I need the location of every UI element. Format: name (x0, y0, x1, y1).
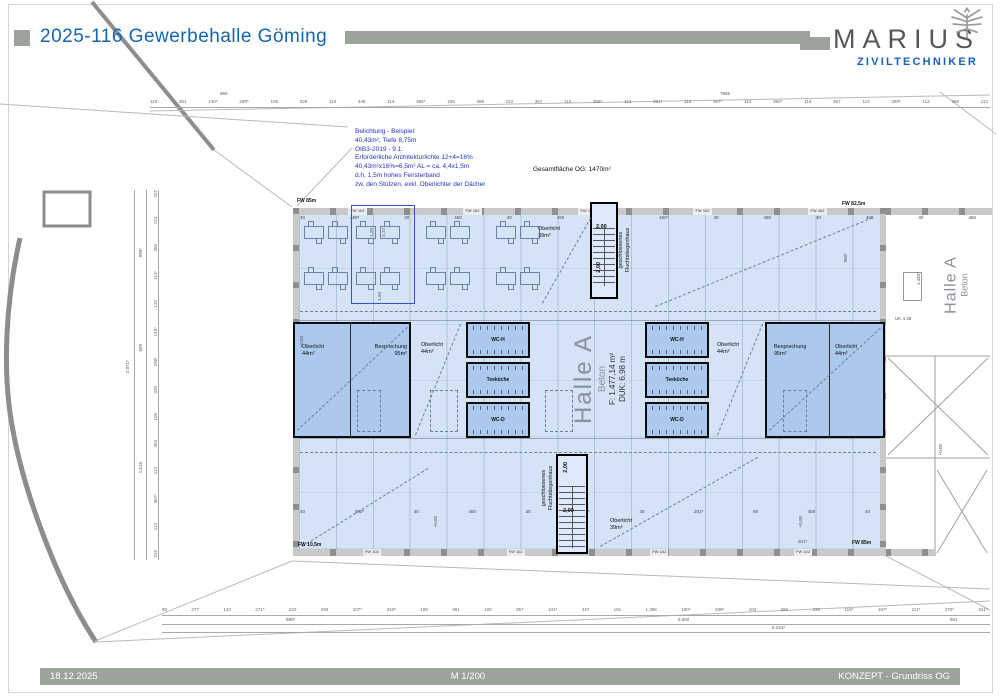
desk-cluster (424, 218, 472, 312)
dim-value: 301 (179, 99, 187, 104)
oberlicht-label: Oberlicht44m² (421, 342, 443, 355)
hall-title: Halle A Beton F: 1.477,14 m² DUK: 6,98 m (571, 314, 629, 444)
wall-tag: FW 102 (794, 549, 812, 556)
dim-value: 100⁵ (681, 607, 690, 612)
dim-value: 148⁵ (153, 327, 158, 336)
level-label: +0,00 (299, 336, 304, 347)
dim-value: 5,73 (381, 228, 386, 237)
room-teekueche: Teeküche (645, 362, 709, 398)
oberlicht-label: Oberlicht44m² (717, 342, 739, 355)
dim-value: 1.398 (646, 607, 657, 612)
dim-value: 366⁵ (593, 99, 602, 104)
desk-cluster (302, 218, 350, 312)
dim-value: 40 (526, 509, 531, 514)
hall-name: Halle A (571, 314, 597, 444)
total-area-label: Gesamtfläche OG: 1470m² (533, 166, 611, 173)
dim-value: 107⁵ (353, 607, 362, 612)
stairwell-south (556, 454, 588, 554)
dim-value: 341⁵ (979, 607, 988, 612)
stair-width-label: 2,00 (563, 508, 574, 515)
dim-value: 367⁵ (153, 494, 158, 503)
dim-value: 357 (516, 607, 524, 612)
dim-value: 277 (191, 607, 199, 612)
hall-material: Beton (597, 314, 608, 444)
dim-value: 113 (329, 99, 336, 104)
dim-line-top (150, 107, 990, 108)
dim-value: 339⁵ (715, 607, 724, 612)
dim-value: 187⁵ (878, 607, 887, 612)
dim-total: 990⁵ (286, 617, 295, 622)
dim-value: 113 (506, 99, 513, 104)
note-line: 40,43m²x16%=6,5m² AL = ca. 4,4x1,5m (355, 163, 485, 172)
dim-total: 2.071⁵ (125, 360, 130, 373)
dim-value: 113 (387, 99, 394, 104)
dim-chain-bottom: 90277132271⁵222293107⁵343⁵10539110035710… (162, 607, 988, 612)
dim-value: 101⁵ (548, 607, 557, 612)
header-bar (345, 31, 810, 44)
austrian-eagle-icon (949, 6, 985, 42)
dashed-line (300, 452, 876, 453)
dim-value: 40 (639, 509, 644, 514)
dim-value: 270⁵ (945, 607, 954, 612)
plan-scale: M 1/200 (451, 671, 485, 682)
level-label: +0,00 (433, 516, 438, 527)
dim-value: 100 (153, 413, 158, 421)
dim-value: 366 (951, 99, 959, 104)
note-line: Belichtung - Beispiel: (355, 128, 485, 137)
dim-value: 115⁵ (844, 607, 853, 612)
wc-stack-west: WC-H Teeküche WC-D (466, 322, 530, 438)
dim-value: 215 (153, 550, 158, 558)
hall-duk: DUK: 6,98 m (618, 314, 628, 444)
dim-value: 1.440⁵ (916, 272, 921, 285)
dim-value: 113 (804, 99, 811, 104)
hall-material: Beton (960, 238, 970, 333)
dim-value: 100 (484, 607, 492, 612)
dim-value: 60 (753, 509, 758, 514)
level-label: +0,00 (938, 444, 943, 455)
dim-value: 460 (968, 215, 976, 220)
oberlicht-label: Oberlicht39m² (610, 518, 632, 531)
dim-value: 298⁵ (153, 357, 158, 366)
brand-subtitle: ZIVILTECHNIKER (857, 56, 978, 68)
dim-line-bottom (162, 624, 990, 625)
fw-label: FW 82,5m (842, 201, 865, 208)
dim-line-bottom (162, 632, 990, 633)
wall-tag: FW 102 (507, 549, 525, 556)
dim-value: 460 (454, 215, 462, 220)
roof-opening (545, 390, 573, 432)
stairwell-north (590, 202, 618, 299)
dim-value: 101 (614, 607, 622, 612)
dim-value: 140⁵ (208, 99, 217, 104)
dim-total: 7665 (720, 91, 730, 96)
dim-value: 369 (477, 99, 485, 104)
dim-value: 40 (865, 509, 870, 514)
note-line: Erforderliche Architekturlichte 12+4=16% (355, 154, 485, 163)
dim-total: 999⁵ (138, 248, 143, 257)
dim-value: 113 (153, 467, 158, 474)
dim-value: 391 (452, 607, 460, 612)
fw-label: FW 10,5m (298, 542, 321, 549)
dim-total: 8.244⁵ (772, 625, 785, 630)
dim-value: 201⁵ (694, 509, 703, 514)
dim-value: 40 (816, 215, 821, 220)
dim-value: 369⁵ (891, 99, 900, 104)
dim-value: 460 (763, 215, 771, 220)
dim-chain-top: 119301140⁵299⁵109229113348113366⁵1083691… (150, 99, 988, 104)
hall-name: Halle A (943, 238, 960, 333)
roof-opening (783, 390, 807, 432)
dim-value: 109 (270, 99, 278, 104)
dim-value: 113 (684, 99, 691, 104)
dim-value: 1,50 (377, 292, 382, 301)
plan-sheet: 2025-116 Gewerbehalle Göming MARIUS ZIVI… (0, 0, 1000, 700)
dim-value: 90 (162, 607, 167, 612)
stair-name-label: geschlossenes Fluchtstiegenhaus (618, 190, 632, 310)
dim-total: 599 (138, 344, 143, 352)
dim-value: 40 (713, 215, 718, 220)
wall-tag: FW 102 (808, 208, 826, 215)
dim-value: 460 (468, 509, 476, 514)
dim-value: 113 (624, 99, 631, 104)
wc-stack-east: WC-H Teeküche WC-D (645, 322, 709, 438)
dim-value: 104 (749, 607, 757, 612)
dim-value: 40 (918, 215, 923, 220)
dim-value: 119 (150, 99, 157, 104)
dim-value: 327 (153, 190, 158, 198)
dim-value: 348 (358, 99, 366, 104)
dim-value: 112 (744, 99, 751, 104)
dim-value: 299⁵ (239, 99, 248, 104)
dim-value: 271⁵ (255, 607, 264, 612)
dim-value: 367 (833, 99, 841, 104)
plan-sheet-name: KONZEPT - Grundriss OG (838, 671, 950, 682)
note-line: OIB3-2019 - 9.1: (355, 146, 485, 155)
dim-value: 113 (981, 99, 988, 104)
dim-value: 330 (813, 607, 821, 612)
dim-value: 366⁵ (416, 99, 425, 104)
desk-cluster (494, 218, 542, 312)
dim-total: 1.516 (138, 462, 143, 473)
room-divider (829, 324, 830, 436)
dim-value: 366 (153, 244, 158, 252)
dim-value: 367 (535, 99, 543, 104)
dim-value: 447 (582, 607, 590, 612)
dim-value: 320 (153, 386, 158, 394)
dim-value: 201⁵ (798, 539, 807, 544)
uk-label: UK 4,48 (895, 316, 911, 321)
hall-right-title: Halle A Beton (943, 238, 973, 333)
page-title: 2025-116 Gewerbehalle Göming (40, 26, 327, 48)
dim-value: 1,20 (369, 228, 374, 237)
dim-value: 367⁵ (713, 99, 722, 104)
dim-value: 460 (557, 215, 565, 220)
fw-label: FW 85m (297, 198, 316, 205)
plan-date: 18.12.2025 (50, 671, 98, 682)
dim-value: 113 (923, 99, 930, 104)
dim-value: 113 (153, 523, 158, 530)
dim-value: 343⁵ (387, 607, 396, 612)
dim-line-bottom (162, 615, 990, 616)
room-teekueche: Teeküche (466, 362, 530, 398)
fw-label: FW 85m (852, 540, 871, 547)
dim-chain-left: 327113366114⁵132148⁵298⁵320100404113367⁵… (150, 190, 160, 558)
wall-tag: FW 102 (650, 549, 668, 556)
hall-area: F: 1.477,14 m² (608, 314, 618, 444)
dim-value: 222 (289, 607, 297, 612)
oberlicht-label: Oberlicht39m² (538, 226, 560, 239)
note-line: 40,43m², Tiefe 8,75m (355, 137, 485, 146)
dim-value: 293 (321, 607, 329, 612)
wall-tag: FW 102 (363, 549, 381, 556)
dim-total: 901 (950, 617, 958, 622)
highlight-bay (351, 205, 415, 304)
dim-value: 960⁵ (843, 253, 848, 262)
room-wc-d: WC-D (645, 402, 709, 438)
daylight-note: Belichtung - Beispiel:40,43m², Tiefe 8,7… (355, 128, 485, 190)
stair-width-label: 2,00 (596, 262, 603, 273)
dim-value: 460⁵ (659, 215, 668, 220)
dim-value: 108 (447, 99, 455, 104)
dim-value: 229 (300, 99, 308, 104)
dim-value: 40 (414, 509, 419, 514)
dim-value: 132 (223, 607, 231, 612)
room-wc-d: WC-D (466, 402, 530, 438)
dim-value: 132 (153, 300, 158, 308)
dim-value: 113 (564, 99, 571, 104)
dim-line-left (146, 190, 147, 560)
dim-total: 660 (220, 91, 228, 96)
room-wc-h: WC-H (645, 322, 709, 358)
room-label: Besprechung95m² (774, 344, 806, 357)
dim-value: 404 (153, 440, 158, 448)
brand-bar (800, 37, 830, 50)
room-wc-h: WC-H (466, 322, 530, 358)
dim-value: 113 (862, 99, 869, 104)
dim-value: 113 (153, 217, 158, 224)
title-square (14, 30, 30, 46)
dim-value: 282 (781, 607, 789, 612)
dim-value: 450 (808, 509, 816, 514)
note-line: zw. den Stützen, exkl. Oberlichter der D… (355, 181, 485, 190)
dim-total: 5.002 (678, 617, 689, 622)
room-label: Oberlicht44m² (302, 344, 324, 357)
level-label: +0,00 (798, 516, 803, 527)
wall-tag: FW 102 (693, 208, 711, 215)
dim-value: 361⁵ (653, 99, 662, 104)
wall-tag: FW 102 (463, 208, 481, 215)
title-block-bar: 18.12.2025 M 1/200 KONZEPT - Grundriss O… (40, 668, 960, 685)
note-line: d.h. 1,5m hohes Fensterband (355, 172, 485, 181)
dim-value: 111⁵ (912, 607, 921, 612)
stair-name-label: geschlossenes Fluchtstiegenhaus (541, 428, 555, 548)
dim-line-left (134, 190, 135, 560)
roof-opening (430, 390, 458, 432)
stair-width-label: 2,00 (563, 462, 570, 473)
dim-value: 40 (300, 509, 305, 514)
dim-value: 40 (300, 215, 305, 220)
dim-value: 114⁵ (153, 271, 158, 280)
dim-value: 40 (507, 215, 512, 220)
roof-opening (357, 390, 381, 432)
stair-width-label: 2,00 (596, 224, 607, 231)
dim-value: 105 (420, 607, 428, 612)
dim-value: 360⁵ (773, 99, 782, 104)
